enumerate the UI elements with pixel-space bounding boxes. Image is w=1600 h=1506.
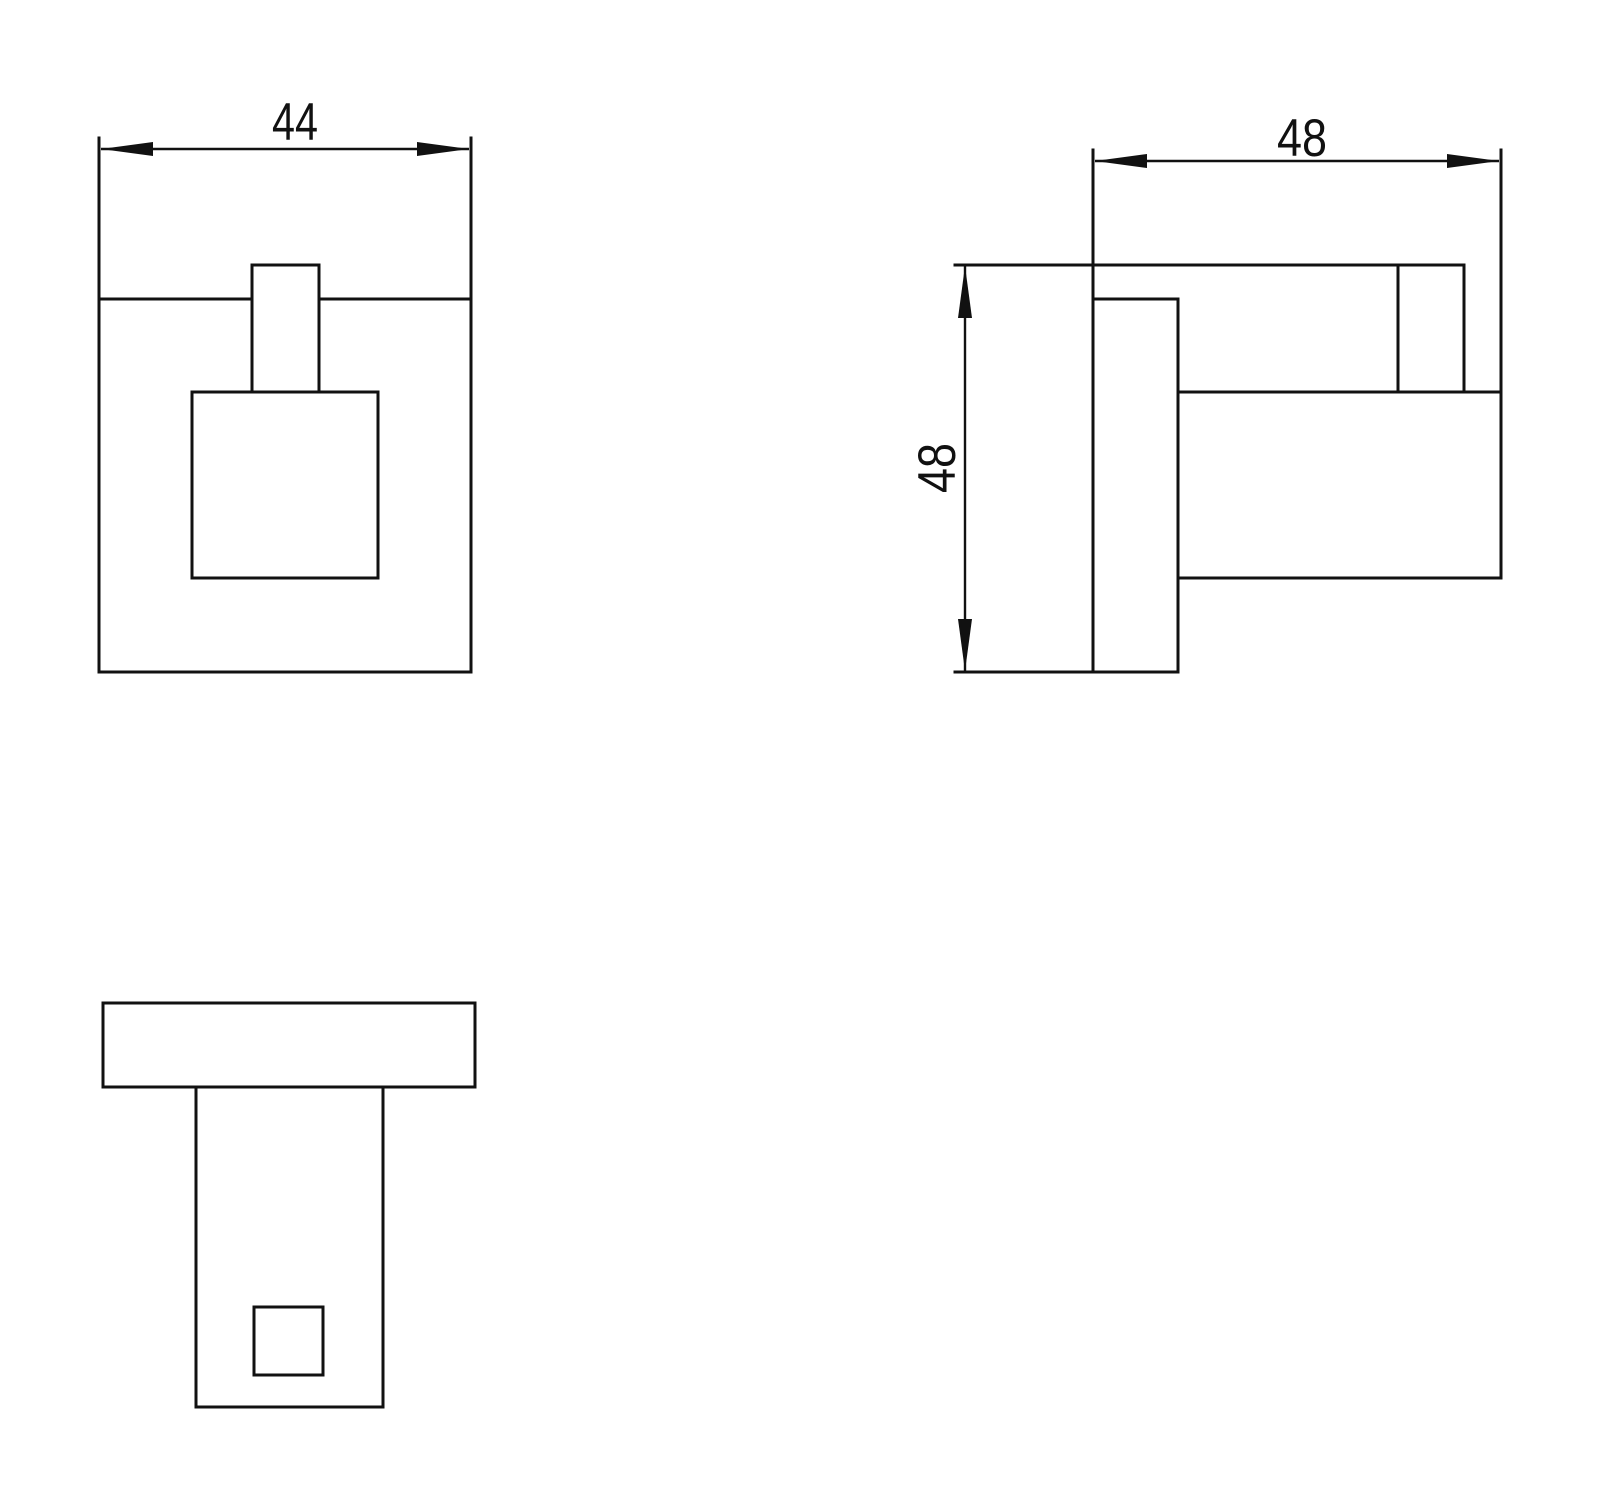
drawing-sheet: 44 48 xyxy=(0,0,1600,1506)
side-depth-label: 48 xyxy=(1277,109,1327,168)
bottom-hook-tip-outline xyxy=(254,1307,323,1375)
front-width-dimension: 44 xyxy=(101,93,469,156)
side-height-dimension: 48 xyxy=(908,266,972,671)
front-width-arrow-left-icon xyxy=(101,142,153,156)
front-width-arrow-right-icon xyxy=(417,142,469,156)
front-arm-face-outline xyxy=(192,392,378,578)
side-depth-arrow-right-icon xyxy=(1447,154,1499,168)
side-depth-arrow-left-icon xyxy=(1095,154,1147,168)
front-view: 44 xyxy=(99,93,471,672)
side-view: 48 48 xyxy=(908,109,1501,672)
side-height-arrow-bottom-icon xyxy=(958,619,972,671)
bottom-view xyxy=(103,1003,475,1407)
technical-drawing-canvas: 44 48 xyxy=(0,0,1600,1506)
front-hook-tip-outline xyxy=(252,265,319,392)
bottom-plate-outline xyxy=(103,1003,475,1087)
side-height-label: 48 xyxy=(908,443,967,493)
side-depth-dimension: 48 xyxy=(1095,109,1499,168)
side-height-arrow-top-icon xyxy=(958,266,972,318)
front-width-label: 44 xyxy=(272,93,318,152)
